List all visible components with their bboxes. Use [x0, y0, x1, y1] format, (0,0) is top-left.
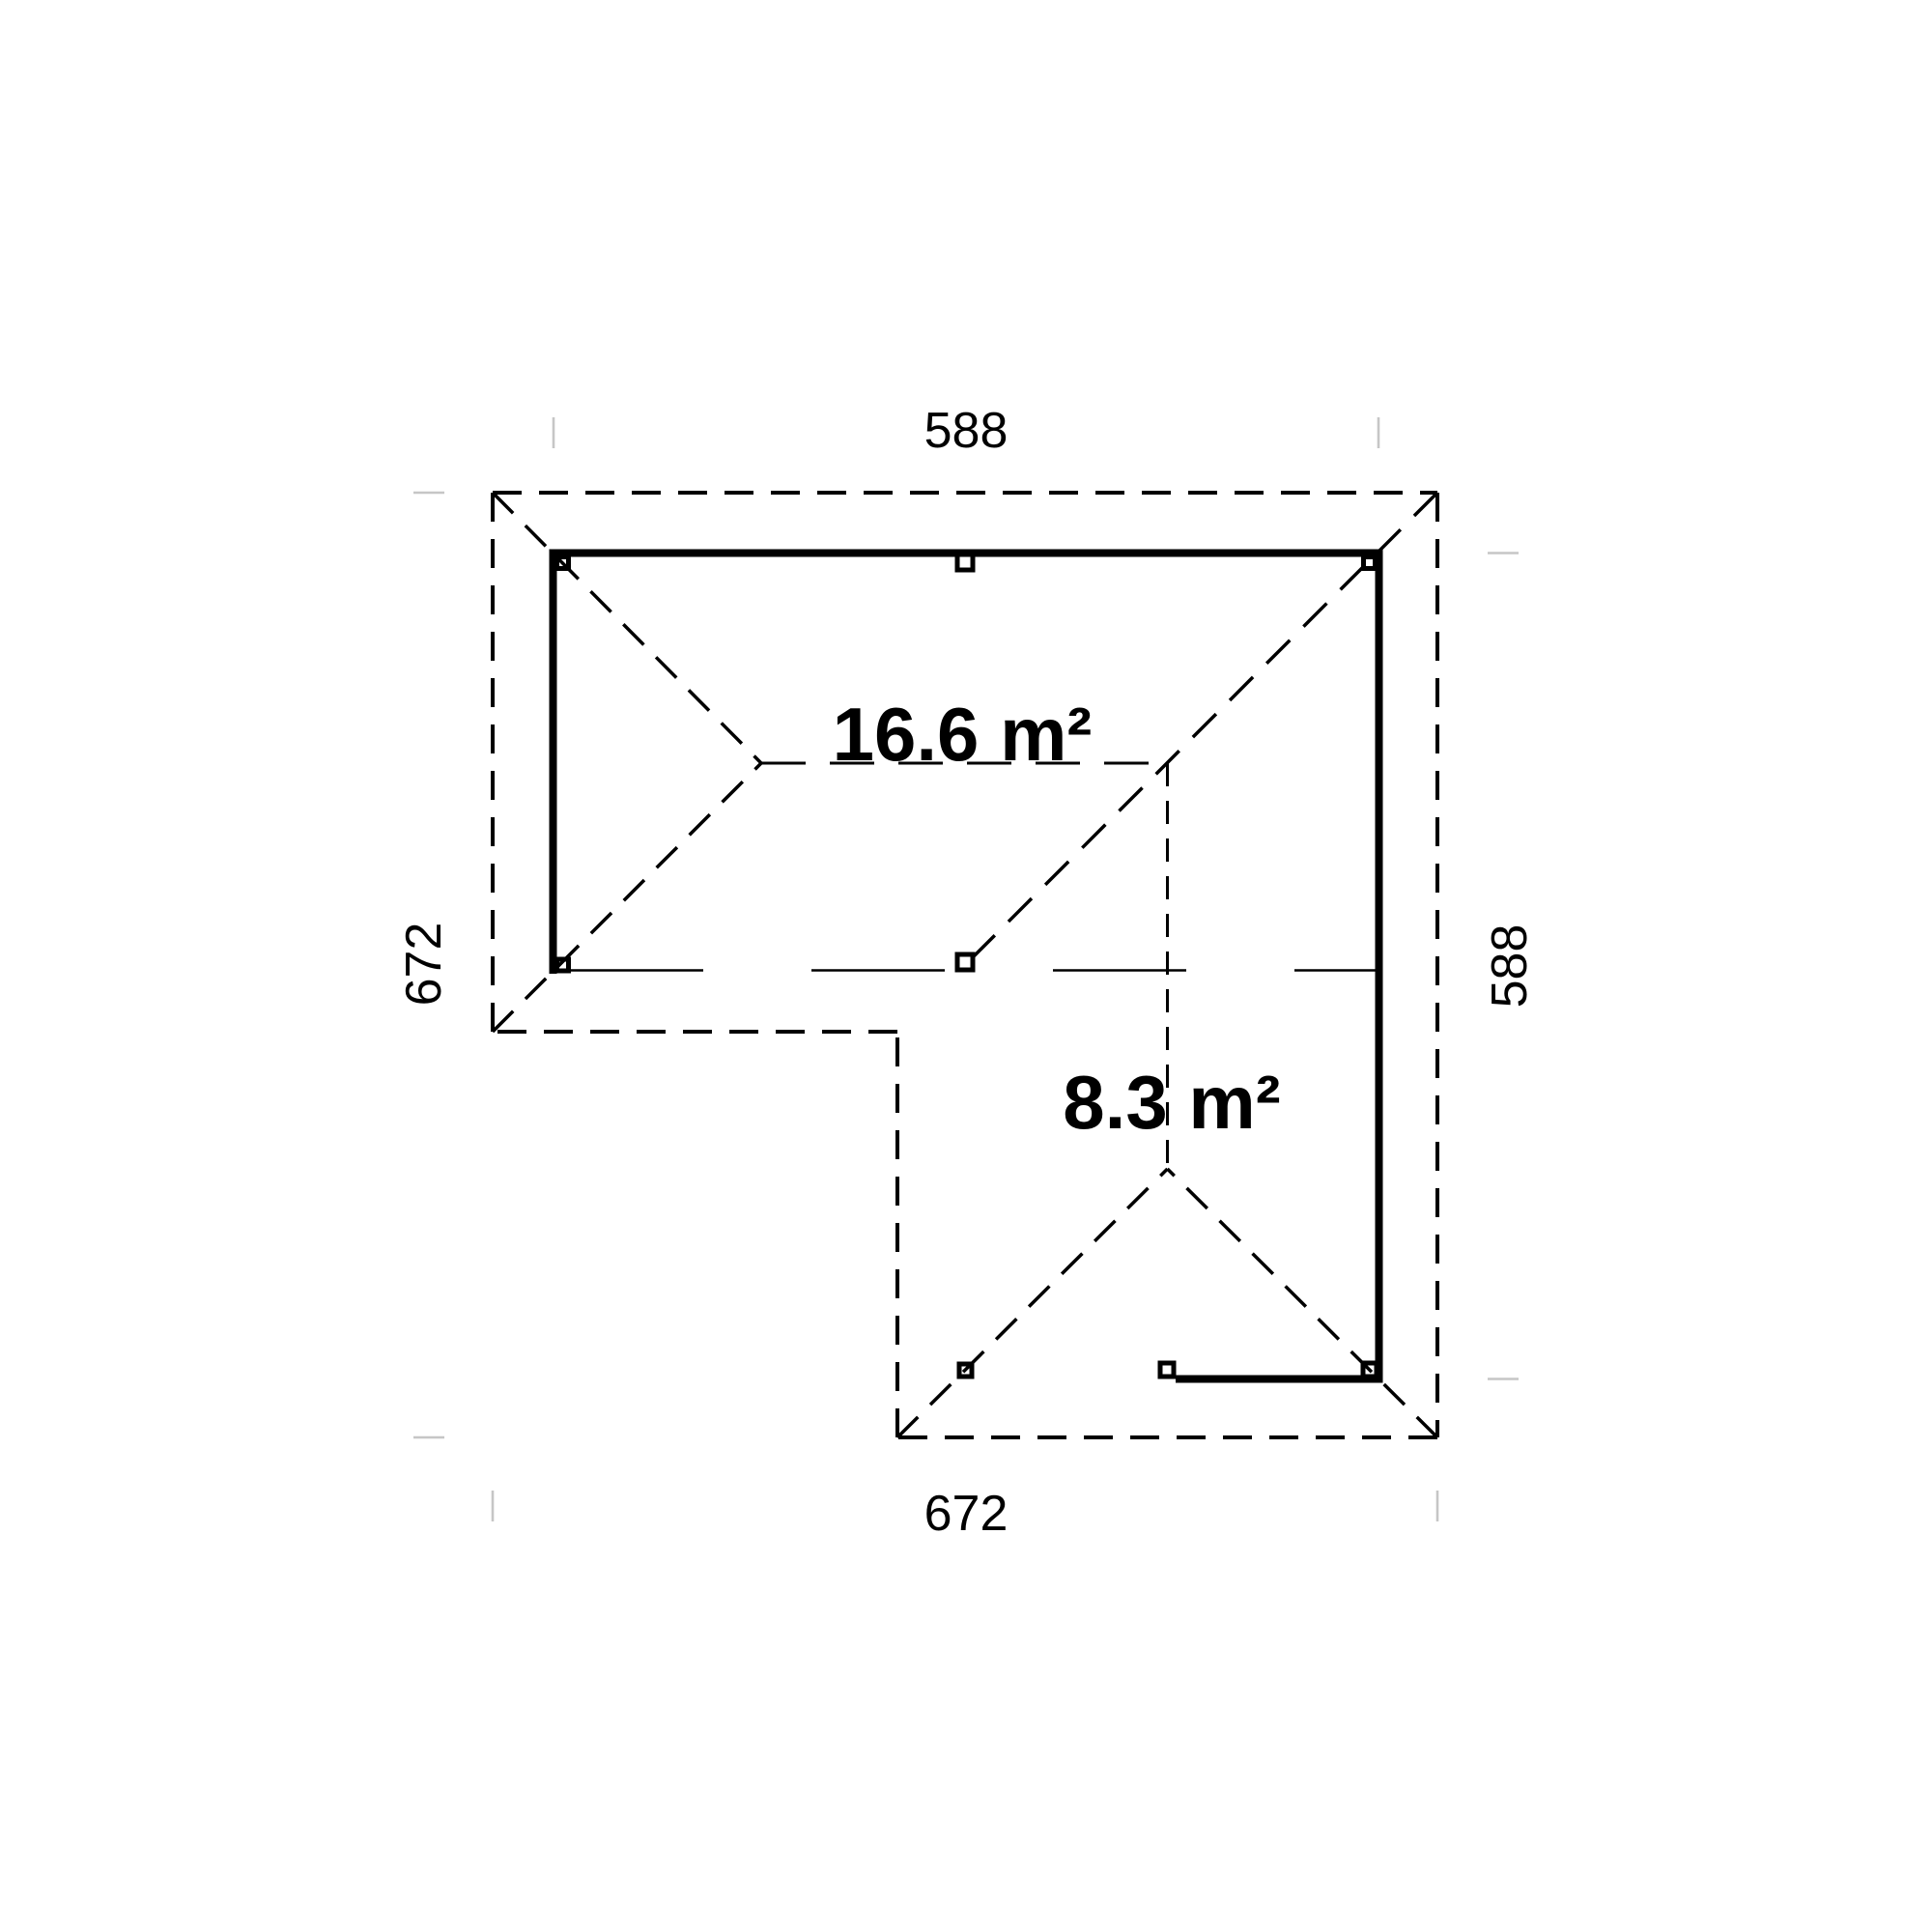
dimension-label-bottom: 672: [924, 1486, 1009, 1542]
post-center-junction: [957, 954, 973, 970]
area-label-annex: 8.3 m²: [1063, 1060, 1280, 1145]
floor-plan-drawing: 588 672 588 672 16.6 m² 8.3 m²: [0, 0, 1932, 1932]
area-label-main-room: 16.6 m²: [833, 692, 1093, 777]
post-top-right: [1364, 557, 1376, 569]
hip-top-left: [493, 493, 761, 763]
dimension-label-left: 672: [396, 923, 452, 1007]
post-top-center: [957, 554, 973, 570]
hip-bottom-left-main: [493, 763, 761, 1032]
dimension-label-top: 588: [924, 403, 1009, 459]
floor-plan-page: 588 672 588 672 16.6 m² 8.3 m²: [0, 0, 1932, 1932]
post-door-jamb: [1160, 1363, 1174, 1377]
dimension-label-right: 588: [1482, 924, 1538, 1009]
hip-annex-right: [1168, 1169, 1438, 1437]
hip-annex-left: [897, 1169, 1168, 1437]
